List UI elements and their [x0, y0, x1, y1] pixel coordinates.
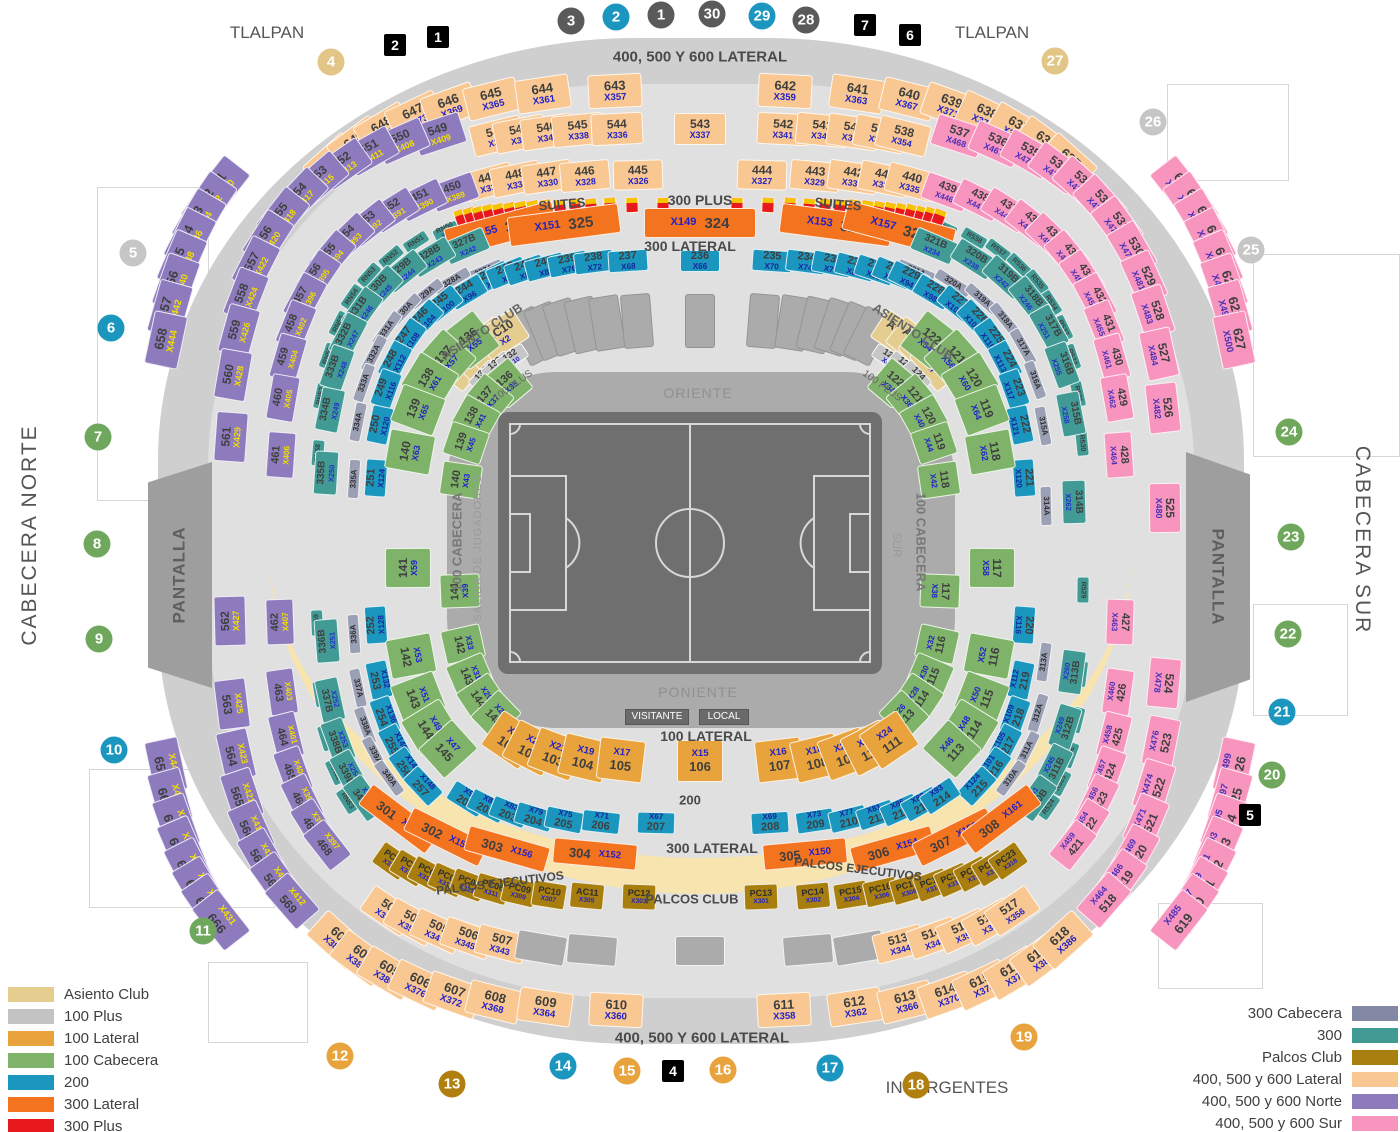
section-314A[interactable]: 314A: [1039, 486, 1052, 526]
section-code: X152: [598, 850, 621, 862]
visitante-badge[interactable]: VISITANTE: [625, 709, 689, 725]
section-number: 106: [689, 760, 711, 773]
section-106[interactable]: 106X15: [677, 740, 723, 782]
gate-1[interactable]: 1: [648, 2, 675, 29]
map-label: 300 LATERAL: [666, 840, 758, 856]
section-code: X70: [764, 263, 779, 272]
legend-row: 400, 500 y 600 Sur: [1193, 1113, 1398, 1132]
section-code: X407: [282, 613, 291, 632]
section-code: X462: [1105, 389, 1116, 409]
section-number: 307: [928, 833, 953, 854]
section-code: X161: [1001, 800, 1025, 821]
map-label: 100 CABECERA: [914, 493, 929, 592]
section-141[interactable]: 141X59: [385, 548, 431, 588]
legend-label: 100 Cabecera: [64, 1052, 158, 1069]
section-number: 221: [1022, 468, 1034, 487]
section-code: X361: [533, 94, 557, 107]
section-610[interactable]: 610X360: [588, 991, 644, 1028]
section-code: X301: [754, 898, 770, 905]
section-117[interactable]: 117X58: [969, 548, 1015, 588]
section-335B[interactable]: 335BX250: [313, 450, 340, 495]
section-140[interactable]: 140X63: [384, 428, 436, 476]
section-444[interactable]: 444X327: [737, 159, 788, 190]
section-number: 313B: [1070, 660, 1083, 685]
section-number: 209: [805, 819, 825, 833]
legend-row: 300 Cabecera: [1193, 1003, 1398, 1024]
section-code: X306: [874, 892, 891, 902]
legend-row: 100 Lateral: [8, 1028, 158, 1049]
legend-row: Palcos Club: [1193, 1047, 1398, 1068]
legend-label: 300: [1317, 1027, 1342, 1044]
section-code: X357: [604, 93, 627, 104]
section-number: 302: [420, 819, 445, 840]
section-code: X128: [378, 615, 387, 634]
section-code: X63: [411, 444, 423, 461]
section-code: X66: [693, 263, 707, 271]
section-code: X358: [773, 1011, 796, 1022]
legend-label: Asiento Club: [64, 986, 149, 1003]
gate-29[interactable]: 29: [749, 3, 776, 30]
gate-13[interactable]: 13: [439, 1071, 466, 1098]
gate-6[interactable]: 6: [98, 315, 125, 342]
section-number: 335A: [350, 469, 359, 489]
gate-30[interactable]: 30: [699, 1, 726, 28]
section-code: X405: [283, 389, 294, 409]
section-220[interactable]: 220X116: [1011, 606, 1035, 645]
section-number: 141: [397, 558, 409, 578]
pantalla-left: PANTALLA: [148, 462, 212, 688]
section-code: X364: [532, 1008, 556, 1021]
section-code: X363: [844, 94, 868, 107]
section-code: X337: [690, 131, 711, 140]
gate-23[interactable]: 23: [1278, 524, 1305, 551]
section-number: 219: [1018, 670, 1032, 690]
section-code: X157: [869, 216, 897, 233]
section-446[interactable]: 446X328: [559, 159, 611, 193]
section-code: X336: [607, 131, 628, 141]
legend-row: 100 Cabecera: [8, 1050, 158, 1071]
section-445[interactable]: 445X326: [612, 159, 663, 190]
section-PC14[interactable]: PC14X302: [795, 882, 831, 911]
legend-label: Palcos Club: [1262, 1049, 1342, 1066]
gate-25[interactable]: 25: [1238, 237, 1265, 264]
legend-row: 100 Plus: [8, 1006, 158, 1027]
section-code: X156: [509, 845, 533, 860]
gate-11[interactable]: 11: [190, 918, 217, 945]
gate-24[interactable]: 24: [1276, 419, 1303, 446]
section-code: X58: [981, 560, 990, 576]
map-label: PALCOS CLUB: [646, 892, 739, 907]
legend-label: 400, 500 y 600 Sur: [1215, 1115, 1342, 1132]
section-252[interactable]: 252X128: [364, 606, 388, 645]
legend-label: 400, 500 y 600 Lateral: [1193, 1071, 1342, 1088]
gate-4[interactable]: 4: [318, 49, 345, 76]
section-code: X429: [232, 426, 242, 447]
section-number: 105: [608, 758, 631, 773]
section-code: X250: [328, 464, 336, 482]
section-number: PC13: [750, 888, 773, 898]
map-label: 100 LATERAL: [660, 728, 752, 744]
section-237[interactable]: 237X68: [608, 249, 649, 274]
section-number: 308: [976, 817, 1001, 840]
section-code: X124: [378, 468, 387, 488]
section-code: X151: [534, 220, 561, 234]
gate-17[interactable]: 17: [817, 1055, 844, 1082]
soccer-field: [498, 412, 882, 674]
section-208[interactable]: 208X69: [750, 811, 789, 835]
section-code: X307: [540, 895, 556, 904]
section-code: X338: [568, 131, 590, 142]
section-428[interactable]: 428X464: [1104, 431, 1135, 479]
section-number: 314B: [1073, 490, 1084, 514]
section-code: X366: [895, 1002, 919, 1017]
section-643[interactable]: 643X357: [587, 73, 643, 110]
section-611[interactable]: 611X358: [756, 991, 812, 1028]
section-number: 445: [628, 164, 648, 177]
section-code: X330: [537, 178, 559, 190]
legend-swatch: [8, 1031, 54, 1046]
map-label: TLALPAN: [955, 23, 1029, 43]
gate-square-6[interactable]: 6: [899, 24, 921, 46]
section-number: 543: [690, 118, 710, 130]
legend-swatch: [1352, 1116, 1398, 1131]
gate-28[interactable]: 28: [793, 7, 820, 34]
section-number: 562: [219, 611, 232, 631]
gate-22[interactable]: 22: [1275, 621, 1302, 648]
section-code: X59: [410, 560, 419, 576]
section-524[interactable]: 524X478: [1146, 657, 1182, 710]
section-number: 116: [934, 635, 949, 655]
section-105[interactable]: 105X17: [595, 737, 646, 784]
section-number: 524: [1162, 673, 1176, 694]
section-code: X478: [1152, 672, 1163, 693]
map-label: 200: [679, 793, 701, 808]
section-PC13[interactable]: PC13X301: [744, 883, 779, 910]
section-number: 334A: [352, 411, 364, 431]
section-code: X262: [1065, 493, 1073, 510]
map-label: CABECERA NORTE: [18, 424, 42, 645]
section-number: 564: [223, 745, 239, 767]
section-number: 117: [939, 582, 951, 600]
section-461[interactable]: 461X406: [265, 431, 296, 479]
map-label: SALIDA DE JUGADORES: [472, 474, 484, 621]
gate-21[interactable]: 21: [1269, 699, 1296, 726]
section-code: X62: [978, 444, 990, 461]
stadium-seating-map: PANTALLA PANTALLA Asiento Club100 Plus10…: [0, 0, 1400, 1132]
section-code: X428: [234, 365, 246, 387]
legend-label: 300 Cabecera: [1248, 1005, 1342, 1022]
section-code: X38: [930, 584, 939, 599]
section-number: 208: [761, 821, 780, 833]
section-code: X326: [628, 177, 649, 186]
map-label: 400, 500 Y 600 LATERAL: [613, 49, 787, 66]
ring500-bottom-box: [565, 933, 617, 967]
section-number: 426: [1116, 683, 1129, 703]
section-543[interactable]: 543X337: [674, 113, 726, 145]
section-code: X258: [1060, 406, 1071, 424]
legend-row: Asiento Club: [8, 984, 158, 1005]
section-number: 116: [987, 647, 1002, 668]
section-code: X327: [751, 177, 772, 186]
section-code: X72: [587, 263, 602, 273]
section-code: X15: [691, 749, 708, 759]
section-number: 427: [1119, 613, 1131, 632]
suites-row-box: [761, 197, 775, 213]
section-code: X45: [466, 437, 478, 453]
background-outline-box: [1253, 254, 1400, 457]
gate-8[interactable]: 8: [84, 531, 111, 558]
legend-swatch: [8, 987, 54, 1002]
gate-5[interactable]: 5: [120, 240, 147, 267]
gate-16[interactable]: 16: [710, 1057, 737, 1084]
section-206[interactable]: 206X71: [581, 809, 621, 835]
gate-15[interactable]: 15: [614, 1058, 641, 1085]
legend-row: 300 Plus: [8, 1116, 158, 1132]
gate-14[interactable]: 14: [550, 1053, 577, 1080]
map-label: CABECERA SUR: [1350, 446, 1374, 635]
section-number: 324: [704, 216, 729, 231]
section-code: X360: [604, 1011, 627, 1022]
section-number: 325: [568, 213, 595, 231]
section-314B[interactable]: 314BX262: [1061, 480, 1086, 525]
section-number: 206: [591, 820, 611, 833]
legend-label: 200: [64, 1074, 89, 1091]
suites-row-box: [625, 197, 639, 213]
section-number: 107: [768, 758, 791, 773]
section-562[interactable]: 562X427: [213, 596, 246, 647]
background-outline-box: [1253, 604, 1348, 716]
section-code: X329: [803, 177, 824, 188]
section-code: X328: [575, 177, 596, 188]
ring500-bottom-box: [782, 933, 834, 967]
section-code: X303: [631, 898, 647, 905]
map-label: PONIENTE: [658, 684, 738, 700]
section-code: X67: [649, 813, 664, 822]
legend-swatch: [8, 1075, 54, 1090]
section-642[interactable]: 642X359: [757, 73, 813, 110]
section-code: X302: [806, 897, 822, 905]
section-427[interactable]: 427X463: [1105, 599, 1135, 646]
section-code: X309: [509, 892, 526, 902]
section-code: X68: [621, 263, 636, 272]
section-number: 336A: [350, 624, 359, 644]
section-R529[interactable]: R529: [1076, 576, 1089, 603]
section-number: 220: [1022, 616, 1034, 635]
legend-left: Asiento Club100 Plus100 Lateral100 Cabec…: [8, 984, 158, 1132]
legend-label: 300 Lateral: [64, 1096, 139, 1113]
section-number: 337A: [352, 678, 364, 698]
map-label: 100 CABECERA: [450, 493, 465, 592]
legend-row: 200: [8, 1072, 158, 1093]
legend-right: 300 Cabecera300Palcos Club400, 500 y 600…: [1193, 1003, 1398, 1132]
section-number: R529: [1079, 581, 1086, 598]
legend-label: 100 Plus: [64, 1008, 122, 1025]
legend-swatch: [8, 1009, 54, 1024]
section-526[interactable]: 526X482: [1145, 381, 1183, 434]
section-code: X116: [1013, 615, 1022, 634]
gate-19[interactable]: 19: [1011, 1024, 1038, 1051]
section-number: 306: [867, 843, 891, 861]
section-number: 523: [1158, 732, 1174, 754]
section-544[interactable]: 544X336: [590, 112, 644, 147]
section-number: 428: [1118, 445, 1130, 464]
legend-swatch: [8, 1119, 54, 1132]
gate-2[interactable]: 2: [603, 4, 630, 31]
legend-swatch: [1352, 1072, 1398, 1087]
section-code: X120: [1013, 468, 1022, 488]
section-number: 522: [1150, 776, 1167, 799]
section-336B[interactable]: 336BX251: [313, 618, 340, 664]
gate-square-2[interactable]: 2: [384, 34, 406, 56]
section-number: 315A: [1037, 415, 1048, 435]
pantalla-right: PANTALLA: [1186, 452, 1250, 702]
section-code: X362: [844, 1008, 868, 1021]
legend-swatch: [8, 1053, 54, 1068]
section-number: 425: [1111, 727, 1126, 747]
section-code: X304: [843, 895, 859, 904]
section-118[interactable]: 118X62: [963, 428, 1015, 476]
gate-7[interactable]: 7: [85, 424, 112, 451]
map-label: ORIENTE: [663, 385, 732, 401]
section-code: X464: [1109, 445, 1118, 465]
legend-label: 100 Lateral: [64, 1030, 139, 1047]
section-number: 461: [270, 445, 282, 464]
gate-10[interactable]: 10: [101, 737, 128, 764]
section-number: 303: [480, 835, 504, 853]
legend-row: 300 Lateral: [8, 1094, 158, 1115]
legend-label: 300 Plus: [64, 1118, 122, 1132]
section-525[interactable]: 525X480: [1149, 483, 1182, 533]
section-code: X341: [772, 131, 793, 141]
legend-swatch: [1352, 1050, 1398, 1065]
section-number: 610: [605, 997, 627, 1011]
section-number: 313A: [1039, 652, 1050, 672]
section-number: 142: [451, 635, 466, 655]
section-number: 301: [374, 798, 399, 821]
section-number: 314A: [1042, 496, 1050, 515]
gate-square-1[interactable]: 1: [427, 26, 449, 48]
section-code: X406: [282, 445, 291, 465]
section-number: 563: [220, 694, 234, 715]
section-code: X251: [328, 631, 337, 649]
section-code: X42: [928, 473, 938, 488]
section-code: X2: [499, 334, 513, 347]
gate-3[interactable]: 3: [558, 8, 585, 35]
section-number: 104: [570, 754, 594, 772]
gate-26[interactable]: 26: [1140, 109, 1167, 136]
gate-20[interactable]: 20: [1259, 762, 1286, 789]
section-number: 142: [398, 646, 414, 668]
section-code: X463: [1109, 613, 1118, 632]
section-code: X359: [773, 93, 796, 104]
section-code: X482: [1151, 398, 1162, 420]
legend-swatch: [8, 1097, 54, 1112]
section-code: X480: [1154, 498, 1163, 519]
press-boxes-box: [685, 294, 715, 348]
pantalla-left-label: PANTALLA: [170, 526, 190, 623]
legend-row: 300: [1193, 1025, 1398, 1046]
gate-square-5[interactable]: 5: [1239, 804, 1261, 826]
map-label: 300 LATERAL: [644, 238, 736, 254]
map-label: 300 PLUS: [668, 192, 733, 208]
gate-27[interactable]: 27: [1042, 48, 1069, 75]
press-boxes-box: [620, 293, 654, 349]
gate-square-4[interactable]: 4: [662, 1060, 684, 1082]
section-number: 526: [1161, 397, 1175, 418]
section-code: X43: [462, 473, 472, 488]
section-number: 561: [219, 426, 232, 447]
section-number: 462: [270, 613, 282, 632]
background-outline-box: [208, 962, 308, 1043]
section-324[interactable]: 324X149: [644, 208, 756, 238]
map-label: TLALPAN: [230, 23, 304, 43]
map-label: 400, 500 Y 600 LATERAL: [615, 1030, 789, 1047]
section-code: X305: [578, 897, 594, 905]
section-number: 463: [271, 683, 284, 703]
section-number: R530: [1078, 434, 1087, 451]
section-561[interactable]: 561X429: [213, 411, 249, 463]
gate-9[interactable]: 9: [86, 626, 113, 653]
legend-swatch: [1352, 1028, 1398, 1043]
legend-row: 400, 500 y 600 Lateral: [1193, 1069, 1398, 1090]
section-563[interactable]: 563X425: [213, 677, 251, 731]
gate-square-7[interactable]: 7: [854, 14, 876, 36]
local-badge[interactable]: LOCAL: [699, 709, 749, 725]
gate-12[interactable]: 12: [327, 1043, 354, 1070]
section-code: X149: [671, 217, 697, 228]
legend-row: 400, 500 y 600 Norte: [1193, 1091, 1398, 1112]
section-number: 207: [647, 822, 666, 833]
section-number: 304: [568, 845, 591, 860]
section-code: X444: [166, 329, 180, 353]
gate-18[interactable]: 18: [903, 1072, 930, 1099]
section-number: 611: [773, 997, 795, 1011]
section-number: 525: [1164, 498, 1176, 518]
legend-swatch: [1352, 1006, 1398, 1021]
legend-label: 400, 500 y 600 Norte: [1202, 1093, 1342, 1110]
section-AC11[interactable]: AC11X305: [569, 882, 605, 911]
map-label: SUR: [890, 532, 904, 557]
section-code: X153: [806, 215, 833, 229]
section-code: X427: [232, 611, 241, 632]
section-number: 205: [553, 817, 573, 831]
ring500-bottom-box: [675, 936, 725, 966]
pantalla-right-label: PANTALLA: [1208, 528, 1228, 625]
section-207[interactable]: 207X67: [637, 811, 676, 834]
legend-swatch: [1352, 1094, 1398, 1109]
section-number: 117: [991, 558, 1003, 577]
section-number: 444: [752, 164, 772, 177]
section-code: X249: [330, 402, 341, 420]
section-462[interactable]: 462X407: [265, 599, 295, 646]
